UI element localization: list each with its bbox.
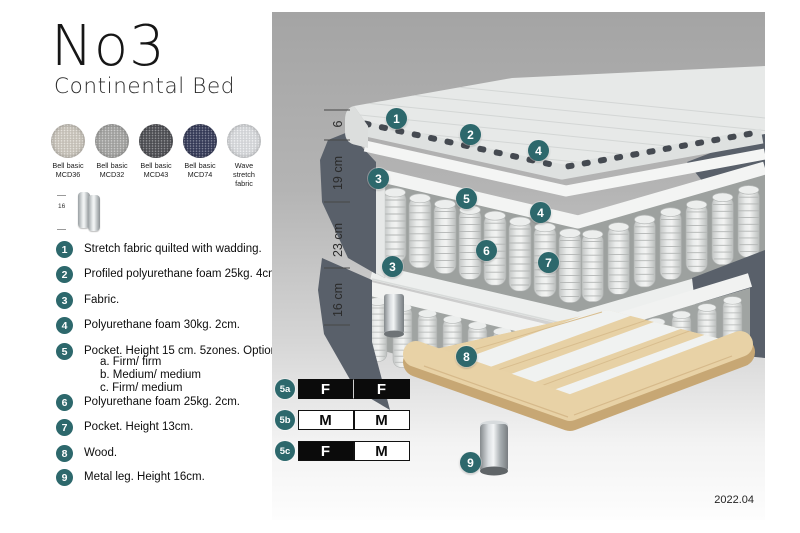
fabric-swatch-mcd43: Bell basic MCD43 [137, 124, 175, 188]
dimension-label-6: 6 [331, 121, 345, 128]
diagram-badge-9: 9 [460, 452, 481, 473]
metal-leg-back [384, 294, 404, 338]
spec-item-1: 1 Stretch fabric quilted with wadding. [56, 241, 262, 258]
spec-num: 8 [56, 445, 73, 462]
spec-item-8: 8 Wood. [56, 445, 117, 462]
firmness-table-5c: F M [298, 441, 410, 461]
spec-item-6: 6 Polyurethane foam 25kg. 2cm. [56, 394, 240, 411]
fabric-swatch-mcd32: Bell basic MCD32 [93, 124, 131, 188]
firmness-table-5a: F F [298, 379, 410, 399]
fabric-swatch-label: Bell basic MCD32 [96, 161, 127, 179]
product-sheet: No3 Continental Bed Bell basic MCD36 Bel… [0, 0, 800, 533]
spec-num: 3 [56, 292, 73, 309]
firmness-badge-5b: 5b [275, 410, 295, 430]
fabric-swatch-circle [95, 124, 129, 158]
fabric-swatch-wave: Wave stretch fabric [225, 124, 263, 188]
spec-item-7: 7 Pocket. Height 13cm. [56, 419, 193, 436]
diagram-badge-3-upper: 3 [368, 168, 389, 189]
spec-item-5-option-b: b. Medium/ medium [100, 369, 201, 381]
spec-item-4: 4 Polyurethane foam 30kg. 2cm. [56, 317, 240, 334]
diagram-badge-3-lower: 3 [382, 256, 403, 277]
firmness-table-5b: M M [298, 410, 410, 430]
product-subtitle: Continental Bed [54, 74, 235, 99]
spec-num: 5 [56, 343, 73, 360]
fabric-swatch-label: Wave stretch fabric [225, 161, 263, 188]
version-label: 2022.04 [714, 494, 754, 506]
leg-dim-tick [57, 195, 66, 196]
spec-num: 6 [56, 394, 73, 411]
diagram-badge-6: 6 [476, 240, 497, 261]
fabric-swatch-mcd36: Bell basic MCD36 [49, 124, 87, 188]
bed-cutaway-image: 6 19 cm 23 cm 16 cm 1 2 4 3 5 4 6 7 3 8 … [272, 12, 765, 520]
spec-item-3: 3 Fabric. [56, 292, 119, 309]
fabric-swatch-circle [51, 124, 85, 158]
spec-num: 2 [56, 266, 73, 283]
spec-num: 7 [56, 419, 73, 436]
spec-item-2: 2 Profiled polyurethane foam 25kg. 4cm. [56, 266, 281, 283]
side-fabric-left-upper [320, 132, 376, 274]
diagram-badge-1: 1 [386, 108, 407, 129]
fabric-swatch-row: Bell basic MCD36 Bell basic MCD32 Bell b… [49, 124, 269, 188]
spec-item-5: 5 Pocket. Height 15 cm. 5zones. Option: [56, 343, 280, 360]
diagram-badge-2: 2 [460, 124, 481, 145]
firmness-cell: F [298, 441, 354, 461]
spec-num: 1 [56, 241, 73, 258]
firmness-cell: F [298, 379, 354, 399]
firmness-cell: M [354, 410, 410, 430]
product-title: No3 [51, 14, 166, 79]
fabric-swatch-label: Bell basic MCD36 [52, 161, 83, 179]
diagram-badge-4-upper: 4 [528, 140, 549, 161]
firmness-badge-5a: 5a [275, 379, 295, 399]
firmness-cell: F [354, 379, 410, 399]
diagram-badge-4-lower: 4 [530, 202, 551, 223]
firmness-cell: M [298, 410, 354, 430]
diagram-badge-7: 7 [538, 252, 559, 273]
dimension-label-16cm: 16 cm [331, 283, 345, 317]
leg-dim-tick [57, 229, 66, 230]
dimension-label-19cm: 19 cm [331, 156, 345, 190]
fabric-swatch-mcd74: Bell basic MCD74 [181, 124, 219, 188]
fabric-swatch-circle [139, 124, 173, 158]
diagram-badge-8: 8 [456, 346, 477, 367]
spec-num: 9 [56, 469, 73, 486]
leg-size-thumbnail: 16 [56, 189, 116, 235]
fabric-swatch-label: Bell basic MCD43 [140, 161, 171, 179]
spec-item-5-option-c: c. Firm/ medium [100, 382, 182, 394]
fabric-swatch-circle [227, 124, 261, 158]
spec-num: 4 [56, 317, 73, 334]
leg-dim-label: 16 [58, 203, 65, 210]
firmness-cell: M [354, 441, 410, 461]
firmness-badge-5c: 5c [275, 441, 295, 461]
metal-leg-front [480, 421, 508, 476]
fabric-swatch-label: Bell basic MCD74 [184, 161, 215, 179]
metal-leg-icon [88, 195, 100, 231]
spec-item-5-option-a: a. Firm/ firm [100, 356, 161, 368]
dimension-label-23cm: 23 cm [331, 223, 345, 257]
fabric-swatch-circle [183, 124, 217, 158]
diagram-badge-5: 5 [456, 188, 477, 209]
spec-item-9: 9 Metal leg. Height 16cm. [56, 469, 205, 486]
